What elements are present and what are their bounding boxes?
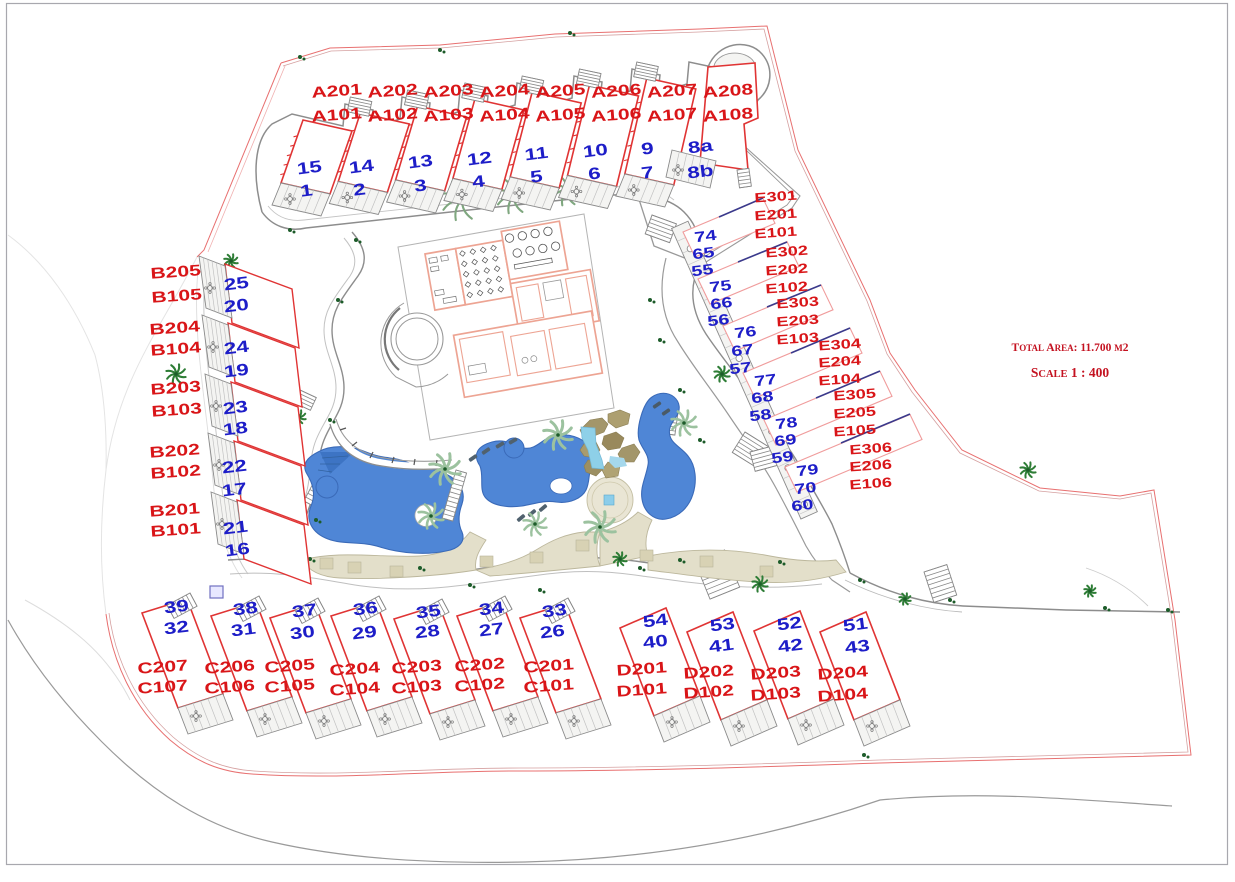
svg-text:10: 10	[582, 140, 609, 161]
svg-text:E303: E303	[776, 295, 820, 312]
svg-text:70: 70	[793, 478, 817, 497]
svg-text:24: 24	[223, 337, 250, 358]
svg-text:A203: A203	[423, 80, 475, 101]
svg-text:D103: D103	[750, 683, 802, 704]
svg-text:18: 18	[222, 418, 249, 439]
svg-text:58: 58	[748, 405, 772, 424]
svg-text:A204: A204	[479, 80, 531, 101]
svg-text:1: 1	[299, 181, 314, 201]
svg-text:57: 57	[728, 358, 752, 377]
svg-text:E106: E106	[849, 476, 893, 493]
svg-text:39: 39	[163, 596, 190, 617]
svg-text:A105: A105	[534, 104, 586, 125]
svg-text:32: 32	[163, 617, 190, 638]
svg-text:20: 20	[223, 295, 250, 316]
svg-text:C206: C206	[204, 656, 256, 677]
svg-text:33: 33	[541, 600, 568, 621]
svg-text:E206: E206	[849, 458, 893, 475]
svg-text:E103: E103	[776, 331, 820, 348]
svg-text:C106: C106	[204, 676, 256, 697]
svg-text:29: 29	[351, 622, 378, 643]
svg-text:B204: B204	[149, 317, 201, 338]
svg-text:37: 37	[291, 600, 318, 621]
svg-text:D102: D102	[683, 681, 735, 702]
svg-text:8a: 8a	[687, 136, 715, 157]
svg-text:53: 53	[709, 614, 736, 635]
svg-text:D201: D201	[616, 658, 668, 679]
svg-text:A107: A107	[646, 104, 698, 125]
svg-text:23: 23	[222, 397, 249, 418]
svg-text:C204: C204	[329, 658, 381, 679]
svg-text:26: 26	[539, 621, 566, 642]
svg-text:B102: B102	[150, 461, 202, 482]
svg-text:52: 52	[776, 613, 803, 634]
svg-text:4: 4	[471, 172, 486, 192]
svg-text:D202: D202	[683, 661, 735, 682]
svg-text:34: 34	[478, 598, 505, 619]
svg-text:19: 19	[223, 360, 250, 381]
svg-text:13: 13	[407, 151, 434, 172]
svg-text:C101: C101	[523, 675, 575, 696]
svg-text:A205: A205	[534, 80, 586, 101]
svg-text:67: 67	[730, 340, 754, 359]
svg-text:A104: A104	[479, 104, 531, 125]
svg-text:E104: E104	[818, 372, 862, 389]
svg-text:51: 51	[842, 614, 869, 635]
svg-text:35: 35	[415, 601, 442, 622]
svg-text:D101: D101	[616, 679, 668, 700]
svg-text:17: 17	[221, 479, 248, 500]
svg-text:A202: A202	[367, 80, 419, 101]
svg-text:21: 21	[222, 517, 249, 538]
svg-text:E204: E204	[818, 354, 862, 371]
svg-text:B103: B103	[151, 399, 203, 420]
svg-text:A101: A101	[311, 104, 363, 125]
svg-text:E201: E201	[754, 207, 798, 224]
svg-text:C207: C207	[137, 656, 189, 677]
svg-text:A207: A207	[646, 80, 698, 101]
svg-text:66: 66	[709, 293, 733, 312]
svg-text:54: 54	[642, 610, 669, 631]
svg-text:8b: 8b	[686, 161, 714, 182]
svg-text:79: 79	[795, 460, 819, 479]
svg-text:E101: E101	[754, 225, 798, 242]
svg-text:6: 6	[587, 164, 602, 184]
svg-text:B205: B205	[150, 261, 202, 282]
svg-text:36: 36	[352, 598, 379, 619]
svg-text:38: 38	[232, 598, 259, 619]
svg-text:2: 2	[352, 180, 367, 200]
svg-text:11: 11	[523, 143, 549, 164]
svg-text:E301: E301	[754, 189, 798, 206]
svg-text:59: 59	[770, 447, 794, 466]
svg-text:12: 12	[466, 148, 493, 169]
svg-text:A102: A102	[367, 104, 419, 125]
svg-text:16: 16	[224, 539, 251, 560]
svg-text:43: 43	[844, 636, 871, 657]
svg-text:28: 28	[414, 621, 441, 642]
svg-text:55: 55	[690, 260, 714, 279]
svg-text:22: 22	[221, 456, 248, 477]
svg-text:E302: E302	[765, 244, 809, 261]
svg-text:A106: A106	[590, 104, 642, 125]
svg-text:E305: E305	[833, 387, 877, 404]
svg-text:B101: B101	[150, 519, 202, 540]
svg-text:E203: E203	[776, 313, 820, 330]
svg-text:E105: E105	[833, 423, 877, 440]
svg-text:E202: E202	[765, 262, 809, 279]
svg-text:77: 77	[753, 370, 777, 389]
svg-text:E205: E205	[833, 405, 877, 422]
svg-text:C104: C104	[329, 678, 381, 699]
svg-text:C102: C102	[454, 674, 506, 695]
svg-text:15: 15	[296, 157, 323, 178]
svg-text:68: 68	[750, 387, 774, 406]
svg-text:B202: B202	[149, 440, 201, 461]
svg-text:A108: A108	[702, 104, 754, 125]
svg-text:A208: A208	[702, 80, 754, 101]
svg-text:30: 30	[289, 622, 316, 643]
svg-text:E306: E306	[849, 441, 893, 458]
svg-text:5: 5	[529, 167, 544, 187]
svg-text:14: 14	[348, 156, 375, 177]
svg-text:42: 42	[777, 635, 804, 656]
svg-text:D204: D204	[817, 662, 869, 683]
svg-text:C203: C203	[391, 656, 443, 677]
svg-text:C202: C202	[454, 654, 506, 675]
svg-text:60: 60	[790, 495, 814, 514]
svg-text:C103: C103	[391, 676, 443, 697]
svg-text:69: 69	[773, 430, 797, 449]
svg-text:3: 3	[413, 176, 428, 196]
svg-text:B203: B203	[150, 377, 202, 398]
svg-text:B105: B105	[151, 285, 203, 306]
svg-text:C205: C205	[264, 655, 316, 676]
svg-text:TOTAL AREA: 11.700 M2: TOTAL AREA: 11.700 M2	[1012, 342, 1129, 354]
svg-text:B104: B104	[150, 338, 202, 359]
svg-text:E304: E304	[818, 337, 862, 354]
svg-text:9: 9	[640, 139, 655, 159]
svg-text:27: 27	[478, 619, 505, 640]
svg-text:C105: C105	[264, 675, 316, 696]
svg-text:56: 56	[706, 310, 730, 329]
svg-text:E102: E102	[765, 280, 809, 297]
svg-text:D104: D104	[817, 684, 869, 705]
svg-text:7: 7	[640, 163, 655, 183]
svg-text:D203: D203	[750, 662, 802, 683]
svg-text:41: 41	[708, 635, 735, 656]
svg-text:A103: A103	[423, 104, 475, 125]
svg-text:25: 25	[223, 273, 250, 294]
svg-text:B201: B201	[149, 499, 201, 520]
svg-text:A206: A206	[590, 80, 642, 101]
svg-text:C201: C201	[523, 655, 575, 676]
svg-text:76: 76	[733, 322, 757, 341]
svg-text:31: 31	[230, 619, 257, 640]
svg-text:40: 40	[642, 631, 669, 652]
svg-text:C107: C107	[137, 676, 189, 697]
svg-text:74: 74	[693, 226, 717, 245]
svg-text:A201: A201	[311, 80, 363, 101]
